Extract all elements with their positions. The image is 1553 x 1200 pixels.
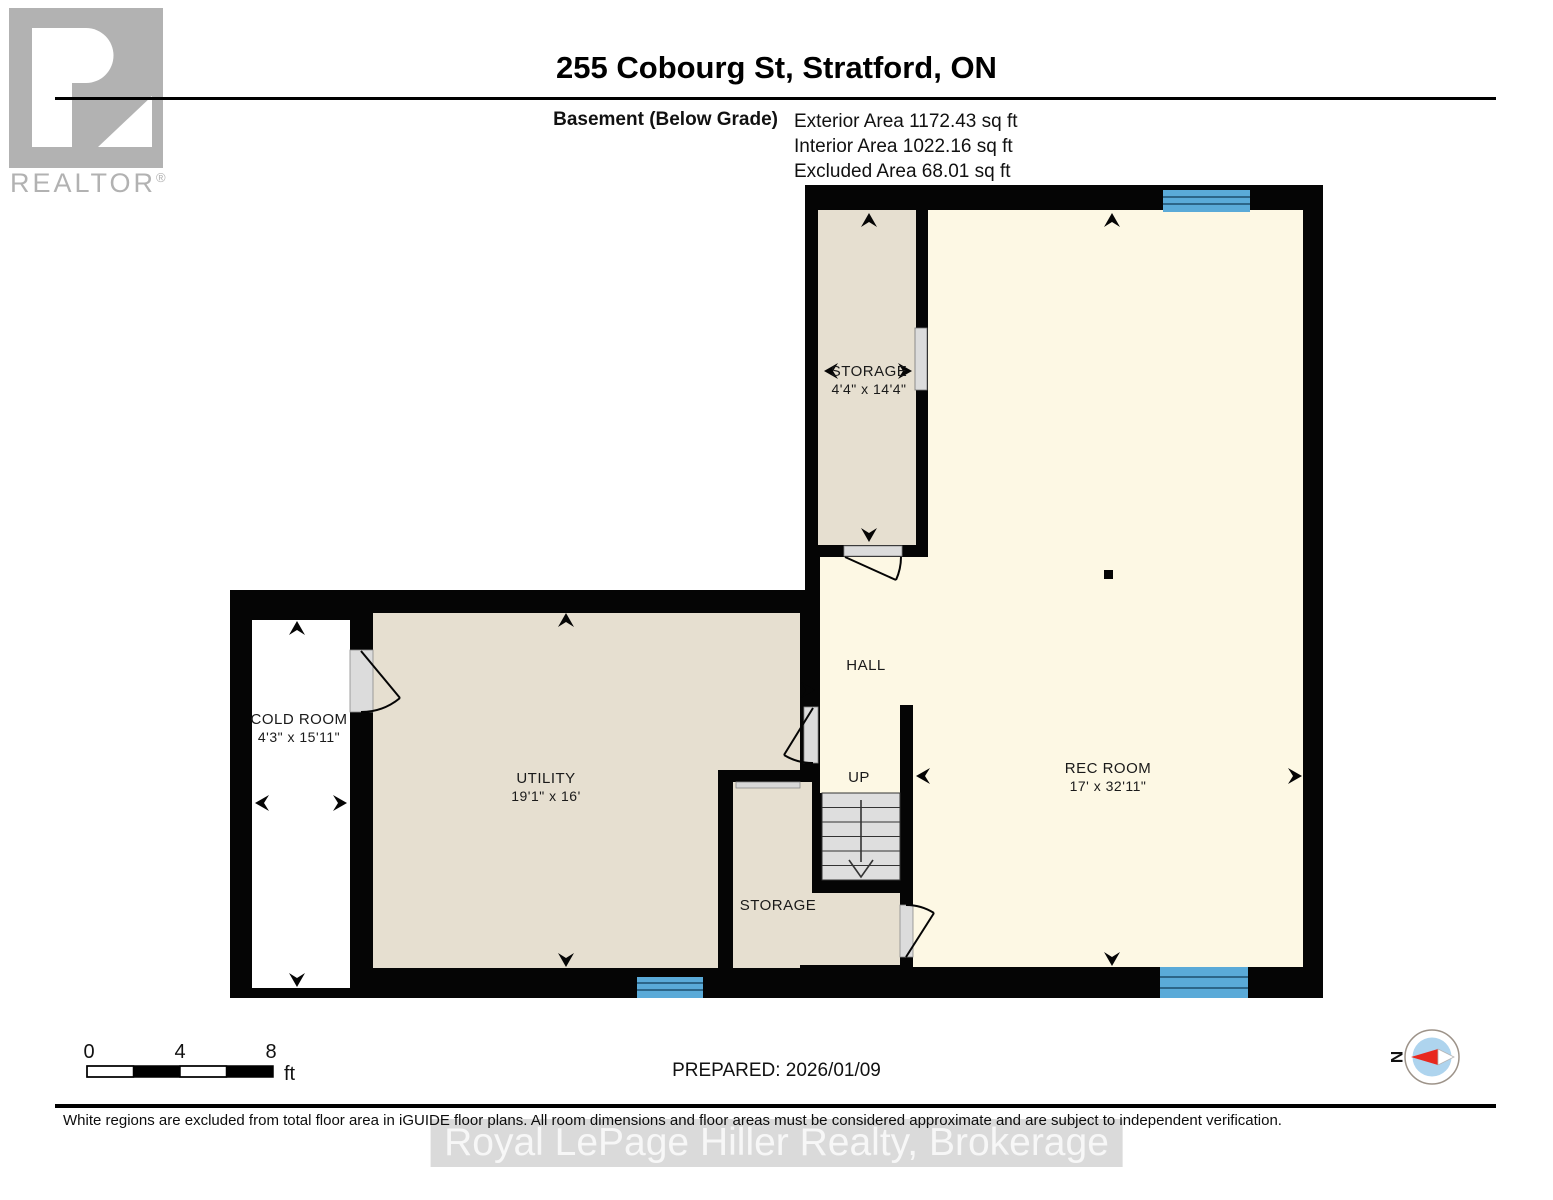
label-up: UP bbox=[848, 769, 870, 786]
floor-plan-page: { "header": { "title": "255 Cobourg St, … bbox=[0, 0, 1553, 1200]
staircase bbox=[822, 793, 900, 880]
label-cold-room: COLD ROOM bbox=[250, 711, 347, 728]
window-top bbox=[1163, 190, 1250, 212]
rec-room-floor-upper bbox=[928, 210, 1303, 705]
label-storage-bottom: STORAGE bbox=[740, 897, 817, 914]
opening-utility-storage bbox=[736, 782, 800, 788]
floor-plan: STORAGE 4'4" x 14'4" COLD ROOM 4'3" x 15… bbox=[0, 0, 1553, 1200]
opening-storage-top-right bbox=[915, 328, 927, 390]
wall-utility-storage bbox=[718, 770, 812, 782]
dims-storage-top: 4'4" x 14'4" bbox=[832, 381, 907, 397]
label-utility: UTILITY bbox=[516, 770, 575, 787]
rec-room-floor-lower bbox=[913, 705, 1303, 967]
label-hall: HALL bbox=[846, 657, 886, 674]
column-marker bbox=[1104, 570, 1113, 579]
dims-utility: 19'1" x 16' bbox=[511, 788, 581, 804]
label-rec-room: REC ROOM bbox=[1065, 760, 1152, 777]
disclaimer-text: White regions are excluded from total fl… bbox=[63, 1112, 1282, 1129]
label-storage-top: STORAGE bbox=[831, 363, 908, 380]
cold-room-floor bbox=[252, 620, 350, 988]
footer-rule bbox=[55, 1104, 1496, 1108]
prepared-date: PREPARED: 2026/01/09 bbox=[0, 1060, 1553, 1082]
wall-storage-left bbox=[718, 782, 733, 968]
dims-rec-room: 17' x 32'11" bbox=[1070, 778, 1147, 794]
window-bottom-right bbox=[1160, 967, 1248, 998]
dims-cold-room: 4'3" x 15'11" bbox=[258, 729, 340, 745]
window-bottom-middle bbox=[637, 977, 703, 998]
